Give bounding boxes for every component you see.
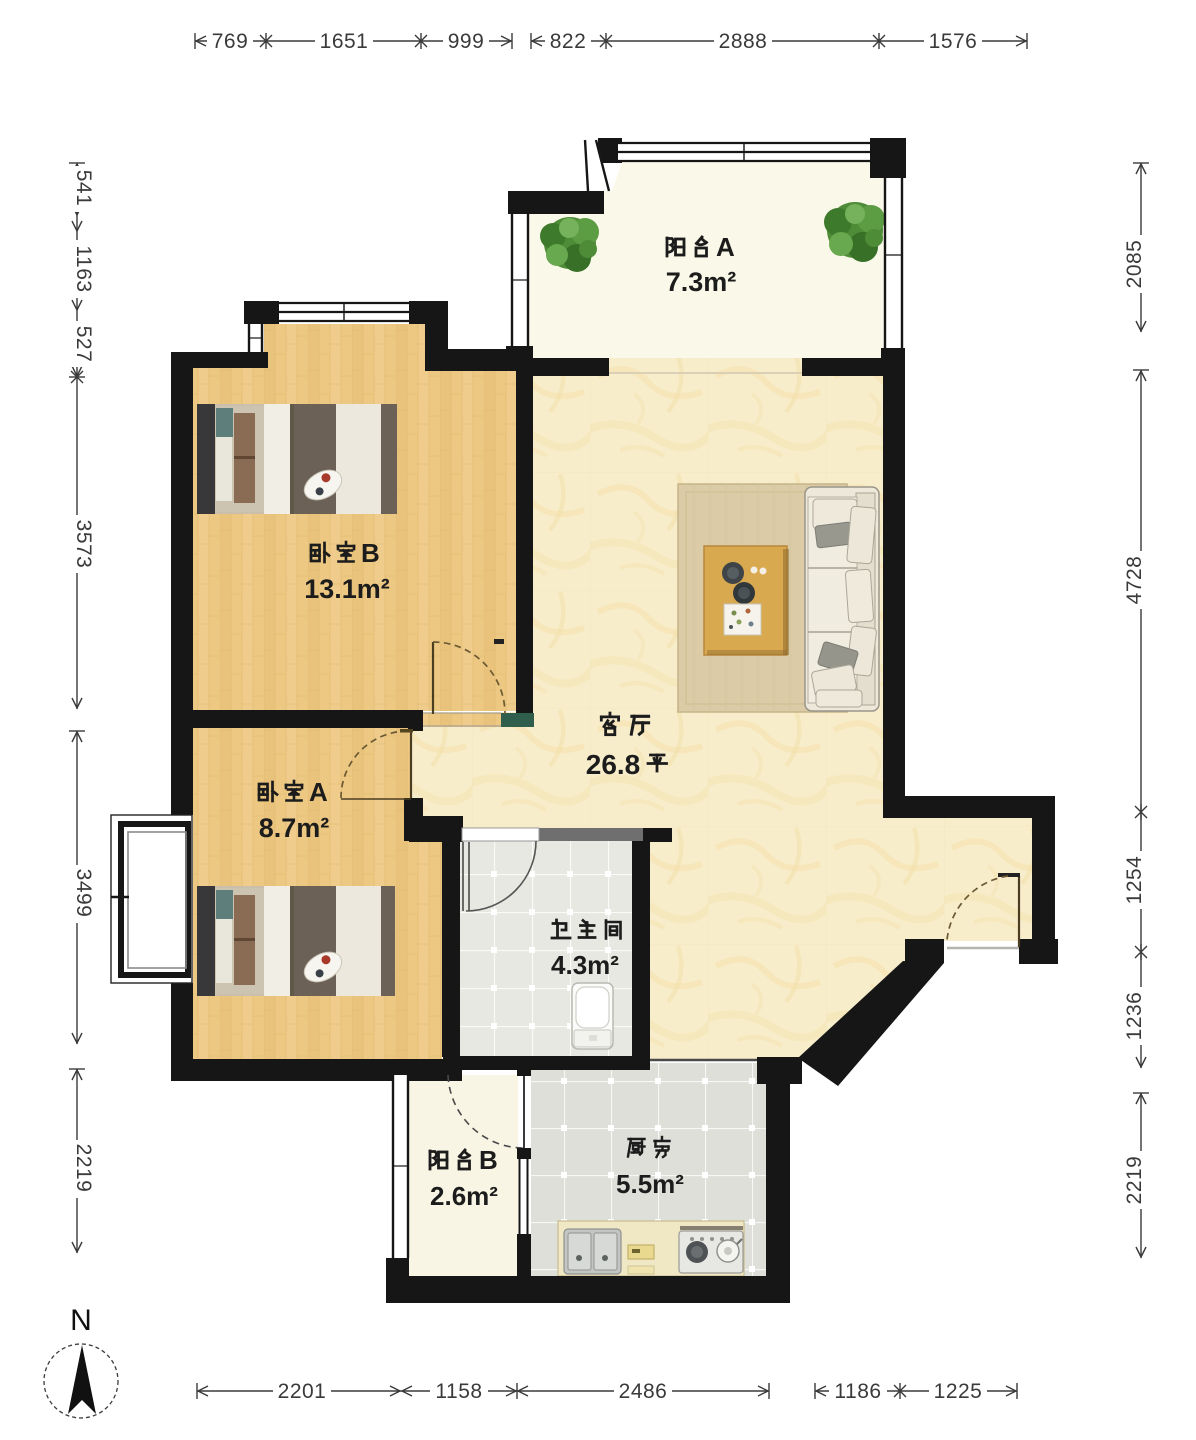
svg-text:A: A (716, 232, 735, 262)
svg-text:3573: 3573 (72, 520, 95, 569)
svg-text:13.1m²: 13.1m² (304, 574, 390, 604)
svg-text:2085: 2085 (1123, 240, 1146, 289)
svg-text:7.3m²: 7.3m² (666, 267, 737, 297)
svg-text:2219: 2219 (72, 1144, 95, 1193)
svg-text:4728: 4728 (1123, 556, 1146, 605)
svg-text:769: 769 (212, 30, 249, 53)
svg-text:26.8: 26.8 (586, 749, 641, 780)
svg-text:822: 822 (550, 30, 587, 53)
svg-text:999: 999 (448, 30, 485, 53)
svg-text:2201: 2201 (278, 1380, 327, 1403)
svg-text:2.6m²: 2.6m² (430, 1181, 498, 1211)
svg-text:B: B (479, 1145, 498, 1175)
svg-text:541: 541 (72, 170, 95, 207)
svg-text:2486: 2486 (619, 1380, 668, 1403)
svg-text:B: B (361, 538, 380, 568)
svg-text:1163: 1163 (72, 245, 95, 292)
svg-text:1651: 1651 (320, 30, 369, 53)
svg-text:2219: 2219 (1123, 1156, 1146, 1205)
svg-text:1158: 1158 (435, 1380, 482, 1403)
svg-text:527: 527 (72, 326, 95, 363)
svg-text:8.7m²: 8.7m² (259, 813, 330, 843)
svg-text:1254: 1254 (1123, 856, 1146, 905)
svg-text:2888: 2888 (719, 30, 768, 53)
svg-text:1225: 1225 (934, 1380, 983, 1403)
svg-text:A: A (309, 777, 328, 807)
svg-text:5.5m²: 5.5m² (616, 1169, 684, 1199)
svg-text:1236: 1236 (1123, 992, 1146, 1041)
svg-text:3499: 3499 (72, 869, 95, 918)
svg-text:N: N (70, 1304, 92, 1337)
svg-text:1576: 1576 (929, 30, 978, 53)
svg-text:1186: 1186 (834, 1380, 881, 1403)
svg-text:4.3m²: 4.3m² (551, 950, 619, 980)
